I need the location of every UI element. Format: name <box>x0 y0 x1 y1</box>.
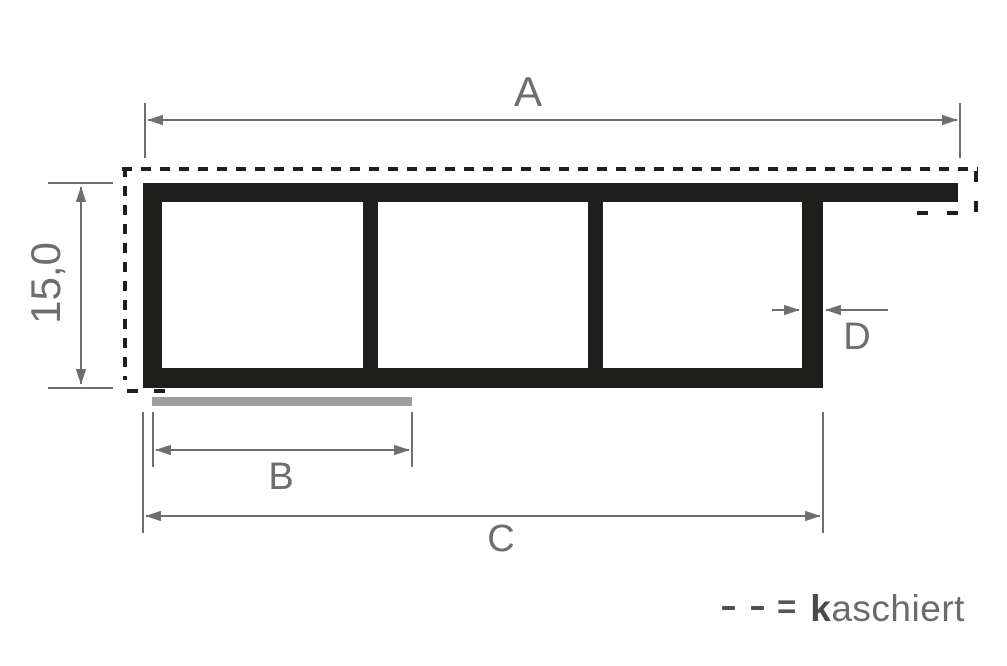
legend-term: kaschiert <box>810 590 965 627</box>
dim-label-b: B <box>268 458 293 496</box>
profile-left-web <box>143 183 162 388</box>
legend-term-rest: aschiert <box>831 588 965 629</box>
dim-label-c: C <box>487 520 514 558</box>
profile-middle-web-1 <box>363 183 378 388</box>
profile-right-web <box>802 183 823 388</box>
profile-middle-web-2 <box>588 183 603 388</box>
legend-term-bold-letter: k <box>810 588 831 629</box>
legend-dash-icon <box>751 606 764 610</box>
technical-drawing-canvas: A 15,0 B C D = kaschiert <box>0 0 1007 666</box>
profile-bottom-flange <box>143 368 823 388</box>
legend: = kaschiert <box>722 588 965 628</box>
dim-label-d: D <box>843 318 870 356</box>
dim-label-height: 15,0 <box>25 242 67 324</box>
dim-label-a: A <box>514 71 542 113</box>
profile-body <box>143 183 958 388</box>
cover-strip <box>152 397 412 406</box>
legend-equals-sign: = <box>777 590 796 627</box>
profile-top-flange <box>143 183 958 202</box>
legend-dash-icon <box>722 606 735 610</box>
